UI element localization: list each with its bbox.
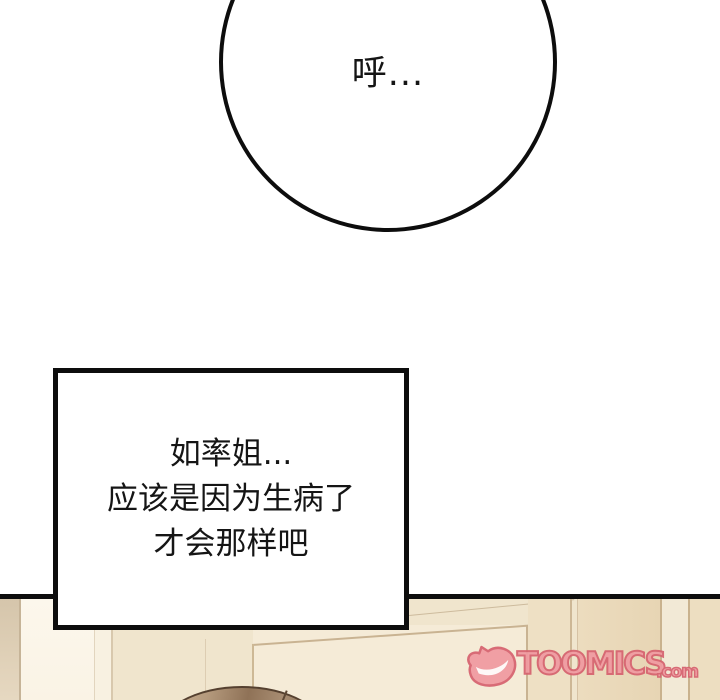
toomics-watermark: TOOMICS .com xyxy=(460,638,716,696)
wall-shadow-strip xyxy=(0,599,20,700)
speech-box-line-3: 才会那样吧 xyxy=(154,522,309,567)
speech-box-line-2: 应该是因为生病了 xyxy=(107,477,355,522)
toomics-d-smile-icon xyxy=(464,644,518,690)
speech-box: 如率姐... 应该是因为生病了 才会那样吧 xyxy=(53,368,409,630)
watermark-suffix-text: .com xyxy=(656,662,698,682)
comic-page: 呼... 如率姐... 应该是因为生病了 才会那样吧 xyxy=(0,0,720,700)
speech-box-line-1: 如率姐... xyxy=(170,432,293,477)
speech-bubble-text: 呼... xyxy=(352,45,424,96)
speech-bubble: 呼... xyxy=(219,0,557,232)
watermark-brand-text: TOOMICS xyxy=(517,646,665,682)
